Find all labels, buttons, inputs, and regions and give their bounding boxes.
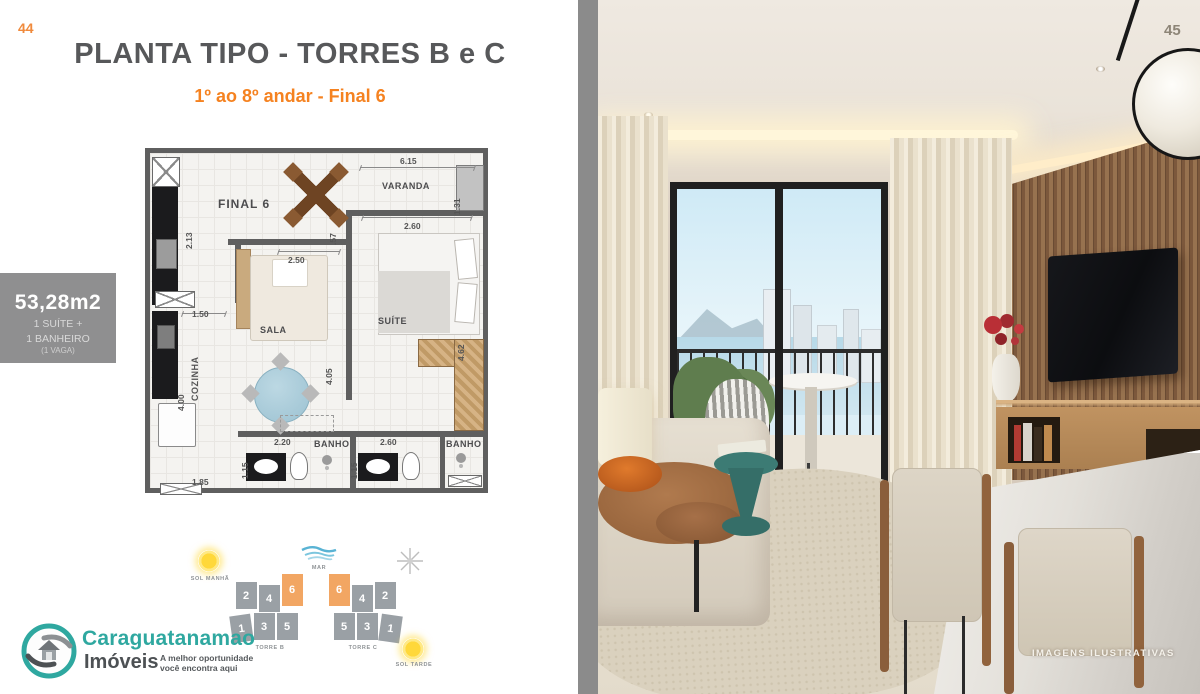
room-cozinha: COZINHA [190,357,200,402]
dim-615: 6.15 [400,156,417,166]
dim-250: 2.50 [288,255,305,265]
dimline-250 [278,251,340,252]
unit-cell: 1 [378,614,403,644]
dimline-260 [362,217,472,218]
badge-parking: (1 VAGA) [0,346,116,355]
floor-plan: FINAL 6 VARANDA SALA SUÍTE COZINHA BANHO… [145,148,488,493]
dim-405: 4.05 [324,368,334,385]
dim-131: 1.31 [452,198,462,215]
page-divider [578,0,598,694]
page-subtitle: 1º ao 8º andar - Final 6 [0,86,580,107]
dim-115a: 1.15 [240,462,250,479]
unit-cell-highlighted: 6 [282,574,303,606]
chair-wood-rail [982,474,991,666]
logo-icon [20,622,78,680]
sun-afternoon-icon [402,638,424,660]
sea-label: MAR [304,565,334,571]
chair-wood-rail [1004,542,1014,694]
sun-morning-icon [198,550,220,572]
logo-tagline-2: você encontra aqui [160,664,237,674]
brochure-spread: 44 PLANTA TIPO - TORRES B e C 1º ao 8º a… [0,0,1200,694]
unit-cell: 3 [357,613,378,640]
book [1014,425,1021,461]
stool-base [722,516,770,536]
stool-waist [728,468,764,522]
bed-pillow-2 [454,282,477,324]
outdoor-chair [795,375,855,463]
unit-cell: 5 [334,613,355,640]
dim-260b: 2.60 [380,437,397,447]
unit-cell: 2 [236,582,257,609]
unit-cell: 3 [254,613,275,640]
book [1044,425,1052,461]
sun-afternoon-label: SOL TARDE [388,662,440,668]
bed-pillow-1 [454,238,478,280]
logo-type: Imóveis [84,652,158,673]
room-varanda: VARANDA [382,181,430,191]
kitchen-door [155,291,195,308]
wall-bath2-divider [440,437,445,488]
orange-bowl [598,456,662,492]
table-lamp [598,388,652,466]
chair-wood-rail [1134,536,1144,688]
chair-backrest [892,468,982,622]
unit-cell: 5 [277,613,298,640]
tower-c-diagram: 6 4 2 5 3 1 [324,579,400,645]
vase [992,354,1020,402]
flowers-anchor [980,310,1032,360]
book [1034,427,1042,461]
dim-400: 4.00 [176,394,186,411]
tower-c-label: TORRE C [329,645,397,651]
closet-dashed [280,415,334,432]
sun-morning-label: SOL MANHÃ [184,576,236,582]
room-suite: SUÍTE [378,316,407,326]
kitchen-window [152,157,180,187]
chair-leg [904,620,907,694]
fridge [156,239,177,269]
room-banho2: BANHO [446,439,482,449]
table-stem [694,540,699,612]
wall-sala-suite [346,210,352,400]
dim-213: 2.13 [184,232,194,249]
compass-icon [396,547,424,575]
shelf-niche [1008,417,1060,463]
dimline-615 [360,167,475,168]
dining-chair-1 [880,468,994,694]
unit-cell: 4 [259,585,280,612]
chair-wood-rail [880,480,889,672]
dim-260a: 2.60 [404,221,421,231]
page-title: PLANTA TIPO - TORRES B e C [0,38,580,71]
room-banho1: BANHO [314,439,350,449]
shower-2 [456,453,466,463]
chair-backrest [1018,528,1132,656]
shower-1 [322,455,332,465]
ceiling-spotlight [1096,66,1105,72]
logo-name: Caraguatanamao [82,628,255,650]
teal-stool [714,448,778,548]
unit-cell: 4 [352,585,373,612]
toilet-1 [290,452,308,480]
dim-057: .57 [328,233,338,245]
sink-1 [254,459,278,474]
area-value: 53,28m2 [0,291,116,315]
area-badge: 53,28m2 1 SUÍTE + 1 BANHEIRO (1 VAGA) [0,273,116,363]
wall-bath-divider [350,431,356,488]
dim-185: 1.85 [192,477,209,487]
dim-150: 1.50 [192,309,209,319]
dining-chair-2 [996,528,1152,694]
page-number-right: 45 [1164,22,1181,39]
room-sala: SALA [260,325,287,335]
unit-cell: 2 [375,582,396,609]
kitchen-sink [157,325,175,349]
toilet-2 [402,452,420,480]
book [1023,423,1032,461]
bath2-window [448,475,482,487]
dim-115b: 1.15 [349,462,359,479]
tv [1048,247,1178,382]
dim-462: 4.62 [456,344,466,361]
sink-2 [366,459,390,474]
room-final6: FINAL 6 [218,197,270,211]
sea-waves-icon [298,545,338,563]
illustrative-caption: IMAGENS ILUSTRATIVAS [1032,648,1175,659]
badge-bathrooms: 1 BANHEIRO [0,333,116,345]
chair-leg [962,616,965,694]
page-number-left: 44 [18,20,34,36]
dim-220: 2.20 [274,437,291,447]
interior-render-photo: 45 IMAGENS ILUSTRATIVAS [598,0,1200,694]
tv-rack [236,249,251,329]
unit-cell-highlighted: 6 [329,574,350,606]
badge-suites: 1 SUÍTE + [0,318,116,330]
pendant-cord [1116,0,1142,61]
red-flowers [984,316,1002,334]
